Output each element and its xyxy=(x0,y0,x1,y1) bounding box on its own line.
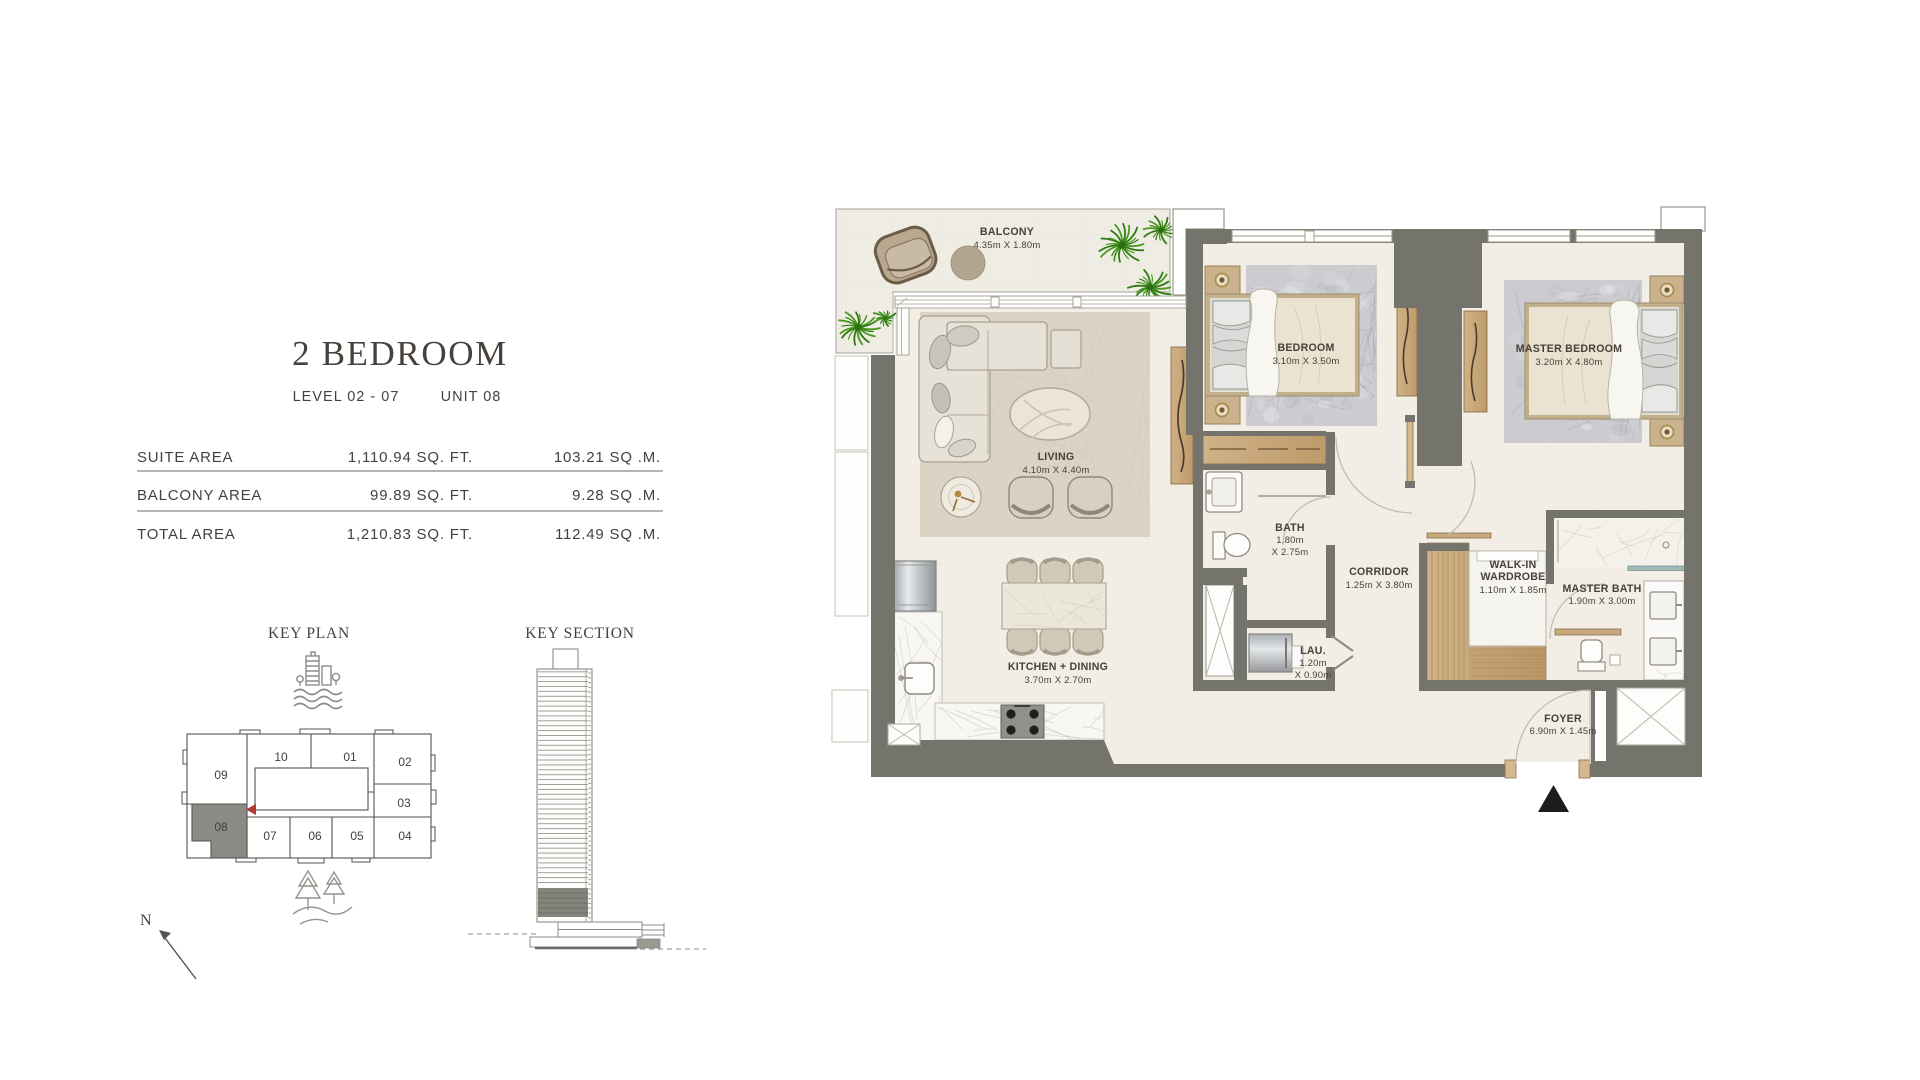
svg-text:CORRIDOR: CORRIDOR xyxy=(1349,566,1409,578)
svg-text:02: 02 xyxy=(398,755,412,769)
svg-text:LIVING: LIVING xyxy=(1038,451,1075,463)
svg-text:1.25m X 3.80m: 1.25m X 3.80m xyxy=(1345,580,1412,591)
svg-text:UNIT 08: UNIT 08 xyxy=(441,389,502,405)
svg-text:01: 01 xyxy=(343,750,357,764)
svg-text:03: 03 xyxy=(397,796,411,810)
svg-text:KITCHEN + DINING: KITCHEN + DINING xyxy=(1008,661,1108,673)
svg-text:09: 09 xyxy=(214,768,228,782)
svg-text:BALCONY AREA: BALCONY AREA xyxy=(137,487,262,504)
svg-text:X 0.90m: X 0.90m xyxy=(1295,670,1332,681)
svg-text:MASTER BATH: MASTER BATH xyxy=(1562,583,1641,595)
svg-text:KEY PLAN: KEY PLAN xyxy=(268,625,350,642)
svg-text:BALCONY: BALCONY xyxy=(980,226,1034,238)
svg-text:1,110.94 SQ. FT.: 1,110.94 SQ. FT. xyxy=(348,449,473,466)
svg-text:KEY SECTION: KEY SECTION xyxy=(525,625,634,642)
svg-text:103.21 SQ .M.: 103.21 SQ .M. xyxy=(554,449,661,466)
svg-text:2 BEDROOM: 2 BEDROOM xyxy=(292,334,508,373)
svg-text:1.10m X 1.85m: 1.10m X 1.85m xyxy=(1479,585,1546,596)
svg-text:3.20m X 4.80m: 3.20m X 4.80m xyxy=(1535,357,1602,368)
svg-text:6.90m X 1.45m: 6.90m X 1.45m xyxy=(1529,726,1596,737)
svg-text:FOYER: FOYER xyxy=(1544,713,1582,725)
svg-text:3.70m X 2.70m: 3.70m X 2.70m xyxy=(1024,675,1091,686)
svg-text:1.80m: 1.80m xyxy=(1276,535,1303,546)
svg-text:05: 05 xyxy=(350,829,364,843)
svg-text:06: 06 xyxy=(308,829,322,843)
svg-text:LAU.: LAU. xyxy=(1300,645,1326,657)
svg-text:112.49 SQ .M.: 112.49 SQ .M. xyxy=(555,526,661,543)
svg-text:BEDROOM: BEDROOM xyxy=(1277,342,1334,354)
svg-text:4.10m X 4.40m: 4.10m X 4.40m xyxy=(1022,465,1089,476)
svg-text:WALK-IN: WALK-IN xyxy=(1489,559,1536,571)
svg-text:WARDROBE: WARDROBE xyxy=(1481,571,1546,583)
svg-text:TOTAL AREA: TOTAL AREA xyxy=(137,526,236,543)
svg-text:04: 04 xyxy=(398,829,412,843)
svg-text:MASTER BEDROOM: MASTER BEDROOM xyxy=(1516,343,1623,355)
svg-text:07: 07 xyxy=(263,829,277,843)
svg-text:1.90m X 3.00m: 1.90m X 3.00m xyxy=(1568,596,1635,607)
svg-text:SUITE AREA: SUITE AREA xyxy=(137,449,233,466)
svg-text:3.10m X 3.50m: 3.10m X 3.50m xyxy=(1272,356,1339,367)
svg-text:4.35m X 1.80m: 4.35m X 1.80m xyxy=(973,240,1040,251)
svg-text:LEVEL 02 - 07: LEVEL 02 - 07 xyxy=(293,389,400,405)
svg-text:1.20m: 1.20m xyxy=(1299,658,1326,669)
svg-text:9.28 SQ .M.: 9.28 SQ .M. xyxy=(572,487,661,504)
svg-text:N: N xyxy=(140,912,152,929)
svg-text:10: 10 xyxy=(274,750,288,764)
svg-text:08: 08 xyxy=(214,820,228,834)
svg-text:99.89 SQ. FT.: 99.89 SQ. FT. xyxy=(370,487,473,504)
svg-text:BATH: BATH xyxy=(1275,522,1305,534)
svg-text:X 2.75m: X 2.75m xyxy=(1272,547,1309,558)
svg-text:1,210.83 SQ. FT.: 1,210.83 SQ. FT. xyxy=(347,526,473,543)
